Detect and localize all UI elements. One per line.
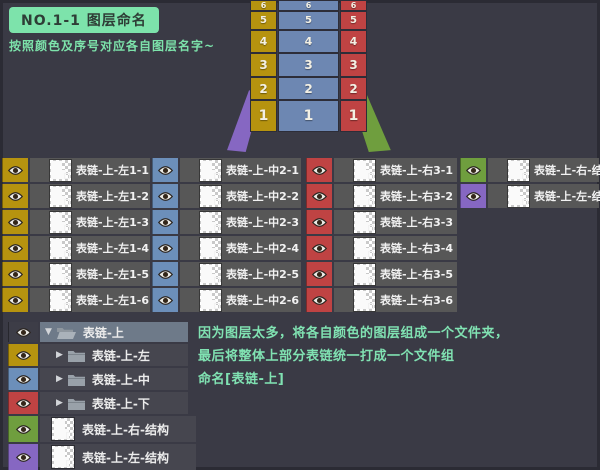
thumbnail-maskbox	[66, 432, 73, 439]
expand-triangle-icon[interactable]: ▶	[56, 398, 63, 408]
diagram-segment: 2	[278, 77, 339, 100]
eye-icon	[16, 398, 31, 409]
tree-row-label: 表链-上-左-结构	[82, 449, 169, 466]
folder-icon	[57, 326, 76, 339]
thumbnail-maskbox	[64, 199, 70, 206]
layer-name-label: 表链-上-右3-6	[380, 292, 453, 308]
layer-thumbnail[interactable]	[200, 160, 221, 181]
thumbnail-maskbox	[214, 251, 220, 258]
eye-icon	[158, 243, 173, 254]
layer-row[interactable]: 表链-上-右-结构	[460, 158, 599, 182]
layer-row[interactable]: 表链-上-左-结构	[460, 184, 599, 208]
note-line: 最后将整体上部分表链统一打成一个文件组	[198, 345, 593, 368]
eye-icon	[312, 243, 327, 254]
layer-row[interactable]: 表链-上-右3-5	[306, 262, 457, 286]
visibility-toggle[interactable]	[8, 444, 38, 470]
diagram-segment: 1	[250, 100, 277, 132]
layer-row[interactable]: 表链-上-右3-2	[306, 184, 457, 208]
expand-triangle-icon[interactable]: ▶	[56, 350, 63, 360]
layer-thumbnail[interactable]	[50, 212, 71, 233]
thumbnail-maskbox	[64, 173, 70, 180]
visibility-toggle[interactable]	[8, 322, 38, 342]
diagram-right-column: 654321	[340, 0, 367, 132]
layer-row[interactable]: 表链-上-中2-2	[152, 184, 301, 208]
eye-icon	[16, 452, 31, 463]
note-line: 因为图层太多，将各自颜色的图层组成一个文件夹，	[198, 322, 593, 345]
eye-icon	[8, 295, 23, 306]
tree-row[interactable]: ▶表链-上-下	[8, 392, 196, 414]
eye-icon	[8, 217, 23, 228]
diagram-segment: 1	[278, 100, 339, 132]
layer-name-label: 表链-上-右3-4	[380, 240, 453, 256]
visibility-toggle[interactable]	[2, 288, 28, 312]
layer-thumbnail[interactable]	[354, 160, 375, 181]
folder-icon	[68, 349, 85, 362]
layer-group-middle-column: 表链-上-中2-1表链-上-中2-2表链-上-中2-3表链-上-中2-4表链-上…	[152, 158, 301, 312]
thumbnail-maskbox	[64, 225, 70, 232]
layer-name-label: 表链-上-右3-2	[380, 188, 453, 204]
layer-row-body[interactable]: 表链-上-右3-1	[334, 158, 457, 182]
layer-name-label: 表链-上-左1-1	[76, 162, 149, 178]
layer-thumbnail[interactable]	[508, 186, 529, 207]
layer-row-body[interactable]: 表链-上-中2-4	[180, 236, 301, 260]
diagram-segment: 5	[340, 11, 367, 30]
layer-row[interactable]: 表链-上-中2-6	[152, 288, 301, 312]
layer-thumbnail[interactable]	[508, 160, 529, 181]
tree-row[interactable]: 表链-上-右-结构	[8, 416, 196, 442]
layer-row-body[interactable]: 表链-上-左1-4	[30, 236, 150, 260]
layer-row[interactable]: 表链-上-左1-4	[2, 236, 150, 260]
thumbnail-maskbox	[66, 460, 73, 467]
eye-icon	[158, 191, 173, 202]
visibility-toggle[interactable]	[306, 262, 332, 286]
thumbnail-maskbox	[214, 225, 220, 232]
eye-icon	[16, 424, 31, 435]
layer-name-label: 表链-上-右3-3	[380, 214, 453, 230]
layer-thumbnail[interactable]	[50, 186, 71, 207]
layer-name-label: 表链-上-右-结构	[534, 162, 600, 178]
layer-row-body[interactable]: 表链-上-左-结构	[488, 184, 599, 208]
collapse-triangle-icon[interactable]: ▼	[45, 327, 52, 337]
diagram-segment: 6	[250, 0, 277, 11]
thumbnail-maskbox	[368, 303, 374, 310]
layer-row-body[interactable]: 表链-上-左1-2	[30, 184, 150, 208]
layer-name-label: 表链-上-右3-5	[380, 266, 453, 282]
eye-icon	[8, 191, 23, 202]
expand-triangle-icon[interactable]: ▶	[56, 374, 63, 384]
folder-icon	[68, 373, 85, 386]
visibility-toggle[interactable]	[152, 158, 178, 182]
tree-row[interactable]: ▶表链-上-左	[8, 344, 196, 366]
diagram-segment: 4	[278, 30, 339, 53]
visibility-toggle[interactable]	[8, 416, 38, 442]
tree-row-body[interactable]: ▶表链-上-中	[40, 368, 188, 390]
thumbnail-maskbox	[368, 277, 374, 284]
visibility-toggle[interactable]	[306, 288, 332, 312]
layer-name-label: 表链-上-左1-5	[76, 266, 149, 282]
eye-icon	[8, 165, 23, 176]
layer-row-body[interactable]: 表链-上-中2-1	[180, 158, 301, 182]
layer-thumbnail[interactable]	[354, 264, 375, 285]
layer-name-label: 表链-上-中2-1	[226, 162, 299, 178]
layer-thumbnail[interactable]	[200, 238, 221, 259]
eye-icon	[8, 269, 23, 280]
layer-row-body[interactable]: 表链-上-中2-2	[180, 184, 301, 208]
visibility-toggle[interactable]	[152, 184, 178, 208]
eye-icon	[466, 191, 481, 202]
eye-icon	[16, 374, 31, 385]
layer-name-label: 表链-上-左-结构	[534, 188, 600, 204]
eye-icon	[312, 191, 327, 202]
eye-icon	[158, 217, 173, 228]
layer-row-body[interactable]: 表链-上-中2-6	[180, 288, 301, 312]
layer-thumbnail[interactable]	[200, 212, 221, 233]
thumbnail-maskbox	[522, 199, 528, 206]
layer-thumbnail[interactable]	[200, 290, 221, 311]
layer-row[interactable]: 表链-上-左1-6	[2, 288, 150, 312]
layer-name-label: 表链-上-右3-1	[380, 162, 453, 178]
diagram-center-column: 654321	[278, 0, 339, 132]
eye-icon	[312, 217, 327, 228]
layer-thumbnail[interactable]	[354, 212, 375, 233]
eye-icon	[8, 243, 23, 254]
diagram-segment: 6	[278, 0, 339, 11]
diagram-segment: 5	[278, 11, 339, 30]
tree-row-label: 表链-上-右-结构	[82, 421, 169, 438]
eye-icon	[312, 269, 327, 280]
visibility-toggle[interactable]	[2, 158, 28, 182]
layer-row-body[interactable]: 表链-上-右-结构	[488, 158, 599, 182]
layer-row[interactable]: 表链-上-右3-4	[306, 236, 457, 260]
diagram-segment: 4	[340, 30, 367, 53]
tree-row-body-selected[interactable]: ▼表链-上	[40, 322, 188, 342]
diagram-segment: 3	[278, 53, 339, 77]
subtitle-text: 按照颜色及序号对应各自图层名字~	[9, 37, 215, 54]
thumbnail-maskbox	[522, 173, 528, 180]
layer-group-structure-column: 表链-上-右-结构表链-上-左-结构	[460, 158, 599, 208]
visibility-toggle[interactable]	[2, 184, 28, 208]
note-text: 因为图层太多，将各自颜色的图层组成一个文件夹，最后将整体上部分表链统一打成一个文…	[198, 322, 593, 391]
layer-thumbnail[interactable]	[52, 446, 74, 468]
visibility-toggle[interactable]	[2, 236, 28, 260]
layer-name-label: 表链-上-左1-4	[76, 240, 149, 256]
layer-thumbnail[interactable]	[50, 160, 71, 181]
tree-row-label: 表链-上-下	[92, 395, 150, 412]
layer-row-body[interactable]: 表链-上-右3-5	[334, 262, 457, 286]
layer-row[interactable]: 表链-上-左1-1	[2, 158, 150, 182]
visibility-toggle[interactable]	[306, 210, 332, 234]
layer-thumbnail[interactable]	[200, 186, 221, 207]
tree-row[interactable]: ▼表链-上	[8, 322, 196, 342]
layer-row-body[interactable]: 表链-上-中2-5	[180, 262, 301, 286]
layer-name-label: 表链-上-中2-4	[226, 240, 299, 256]
visibility-toggle[interactable]	[460, 158, 486, 182]
layer-name-label: 表链-上-中2-3	[226, 214, 299, 230]
layer-row-body[interactable]: 表链-上-中2-3	[180, 210, 301, 234]
diagram-segment: 1	[340, 100, 367, 132]
eye-icon	[312, 295, 327, 306]
layer-group-left-column: 表链-上-左1-1表链-上-左1-2表链-上-左1-3表链-上-左1-4表链-上…	[2, 158, 150, 312]
tutorial-canvas: NO.1-1 图层命名 按照颜色及序号对应各自图层名字~ 654321 6543…	[0, 0, 600, 470]
tree-row-body[interactable]: 表链-上-右-结构	[40, 416, 196, 442]
layer-row-body[interactable]: 表链-上-右3-3	[334, 210, 457, 234]
layer-row[interactable]: 表链-上-左1-2	[2, 184, 150, 208]
layer-row[interactable]: 表链-上-右3-3	[306, 210, 457, 234]
page-title: NO.1-1 图层命名	[9, 7, 159, 33]
visibility-toggle[interactable]	[152, 236, 178, 260]
visibility-toggle[interactable]	[306, 184, 332, 208]
thumbnail-maskbox	[64, 303, 70, 310]
eye-icon	[16, 350, 31, 361]
visibility-toggle[interactable]	[8, 344, 38, 366]
visibility-toggle[interactable]	[152, 210, 178, 234]
layer-row[interactable]: 表链-上-中2-4	[152, 236, 301, 260]
thumbnail-maskbox	[368, 225, 374, 232]
diagram-segment: 3	[250, 53, 277, 77]
layer-row[interactable]: 表链-上-右3-1	[306, 158, 457, 182]
thumbnail-maskbox	[64, 251, 70, 258]
layer-name-label: 表链-上-中2-6	[226, 292, 299, 308]
thumbnail-maskbox	[214, 199, 220, 206]
visibility-toggle[interactable]	[152, 262, 178, 286]
visibility-toggle[interactable]	[460, 184, 486, 208]
eye-icon	[158, 295, 173, 306]
layer-row-body[interactable]: 表链-上-左1-1	[30, 158, 150, 182]
visibility-toggle[interactable]	[306, 236, 332, 260]
thumbnail-maskbox	[214, 303, 220, 310]
layer-row-body[interactable]: 表链-上-右3-4	[334, 236, 457, 260]
layer-row-body[interactable]: 表链-上-右3-2	[334, 184, 457, 208]
layer-row-body[interactable]: 表链-上-右3-6	[334, 288, 457, 312]
visibility-toggle[interactable]	[2, 262, 28, 286]
layer-name-label: 表链-上-中2-2	[226, 188, 299, 204]
thumbnail-maskbox	[368, 251, 374, 258]
layer-thumbnail[interactable]	[200, 264, 221, 285]
layer-group-right-column: 表链-上-右3-1表链-上-右3-2表链-上-右3-3表链-上-右3-4表链-上…	[306, 158, 457, 312]
tree-row-label: 表链-上-中	[92, 371, 150, 388]
tree-row[interactable]: 表链-上-左-结构	[8, 444, 196, 470]
diagram-left-column: 654321	[250, 0, 277, 132]
layer-row[interactable]: 表链-上-中2-3	[152, 210, 301, 234]
thumbnail-maskbox	[214, 173, 220, 180]
layer-name-label: 表链-上-左1-2	[76, 188, 149, 204]
layer-thumbnail[interactable]	[50, 290, 71, 311]
layer-row[interactable]: 表链-上-左1-5	[2, 262, 150, 286]
layer-thumbnail[interactable]	[354, 238, 375, 259]
diagram-segment: 2	[250, 77, 277, 100]
diagram-segment: 6	[340, 0, 367, 11]
diagram-segment: 3	[340, 53, 367, 77]
diagram-segment: 5	[250, 11, 277, 30]
tree-row-label: 表链-上-左	[92, 347, 150, 364]
eye-icon	[158, 269, 173, 280]
thumbnail-maskbox	[368, 173, 374, 180]
layer-name-label: 表链-上-中2-5	[226, 266, 299, 282]
eye-icon	[312, 165, 327, 176]
eye-icon	[466, 165, 481, 176]
folder-icon	[68, 397, 85, 410]
layer-row-body[interactable]: 表链-上-左1-5	[30, 262, 150, 286]
layer-thumbnail[interactable]	[354, 290, 375, 311]
layer-name-label: 表链-上-左1-6	[76, 292, 149, 308]
visibility-toggle[interactable]	[8, 392, 38, 414]
thumbnail-maskbox	[214, 277, 220, 284]
tree-row-label: 表链-上	[83, 324, 124, 341]
diagram-segment: 4	[250, 30, 277, 53]
layer-name-label: 表链-上-左1-3	[76, 214, 149, 230]
thumbnail-maskbox	[368, 199, 374, 206]
note-line: 命名[表链-上]	[198, 368, 593, 391]
visibility-toggle[interactable]	[8, 368, 38, 390]
layer-row-body[interactable]: 表链-上-左1-6	[30, 288, 150, 312]
visibility-toggle[interactable]	[2, 210, 28, 234]
visibility-toggle[interactable]	[306, 158, 332, 182]
thumbnail-maskbox	[64, 277, 70, 284]
tree-row[interactable]: ▶表链-上-中	[8, 368, 196, 390]
layer-thumbnail[interactable]	[50, 238, 71, 259]
diagram-segment: 2	[340, 77, 367, 100]
layer-thumbnail[interactable]	[50, 264, 71, 285]
tree-row-body[interactable]: 表链-上-左-结构	[40, 444, 196, 470]
visibility-toggle[interactable]	[152, 288, 178, 312]
layer-row[interactable]: 表链-上-中2-1	[152, 158, 301, 182]
layer-row-body[interactable]: 表链-上-左1-3	[30, 210, 150, 234]
layer-thumbnail[interactable]	[52, 418, 74, 440]
layer-row[interactable]: 表链-上-中2-5	[152, 262, 301, 286]
layer-thumbnail[interactable]	[354, 186, 375, 207]
layer-row[interactable]: 表链-上-右3-6	[306, 288, 457, 312]
layers-panel-tree: ▼表链-上▶表链-上-左▶表链-上-中▶表链-上-下表链-上-右-结构表链-上-…	[8, 322, 196, 470]
tree-row-body[interactable]: ▶表链-上-左	[40, 344, 188, 366]
eye-icon	[16, 327, 31, 338]
layer-row[interactable]: 表链-上-左1-3	[2, 210, 150, 234]
tree-row-body[interactable]: ▶表链-上-下	[40, 392, 188, 414]
eye-icon	[158, 165, 173, 176]
